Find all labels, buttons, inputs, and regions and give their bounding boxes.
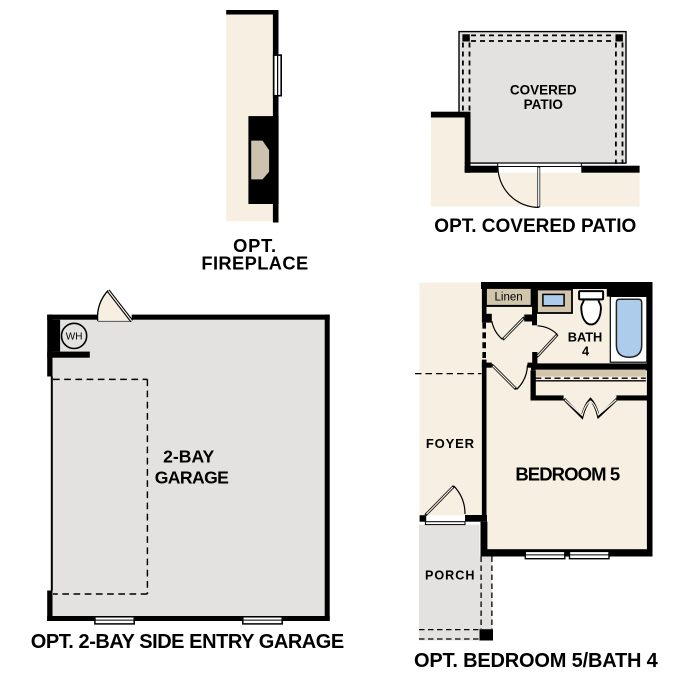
svg-text:OPT. BEDROOM 5/BATH 4: OPT. BEDROOM 5/BATH 4 xyxy=(414,650,659,672)
svg-text:COVERED: COVERED xyxy=(510,83,577,98)
svg-text:BATH: BATH xyxy=(568,330,603,345)
svg-text:BEDROOM 5: BEDROOM 5 xyxy=(515,464,620,485)
svg-text:PORCH: PORCH xyxy=(425,569,475,583)
svg-text:OPT. 2-BAY SIDE ENTRY GARAGE: OPT. 2-BAY SIDE ENTRY GARAGE xyxy=(31,631,344,653)
svg-text:WH: WH xyxy=(66,331,83,342)
svg-text:4: 4 xyxy=(582,344,590,359)
svg-text:Linen: Linen xyxy=(495,291,523,303)
svg-text:FOYER: FOYER xyxy=(426,436,475,451)
svg-text:OPT. COVERED PATIO: OPT. COVERED PATIO xyxy=(434,216,636,237)
svg-text:PATIO: PATIO xyxy=(524,97,563,112)
svg-text:FIREPLACE: FIREPLACE xyxy=(201,253,308,274)
svg-text:2-BAY: 2-BAY xyxy=(163,446,214,466)
svg-text:GARAGE: GARAGE xyxy=(155,467,229,487)
